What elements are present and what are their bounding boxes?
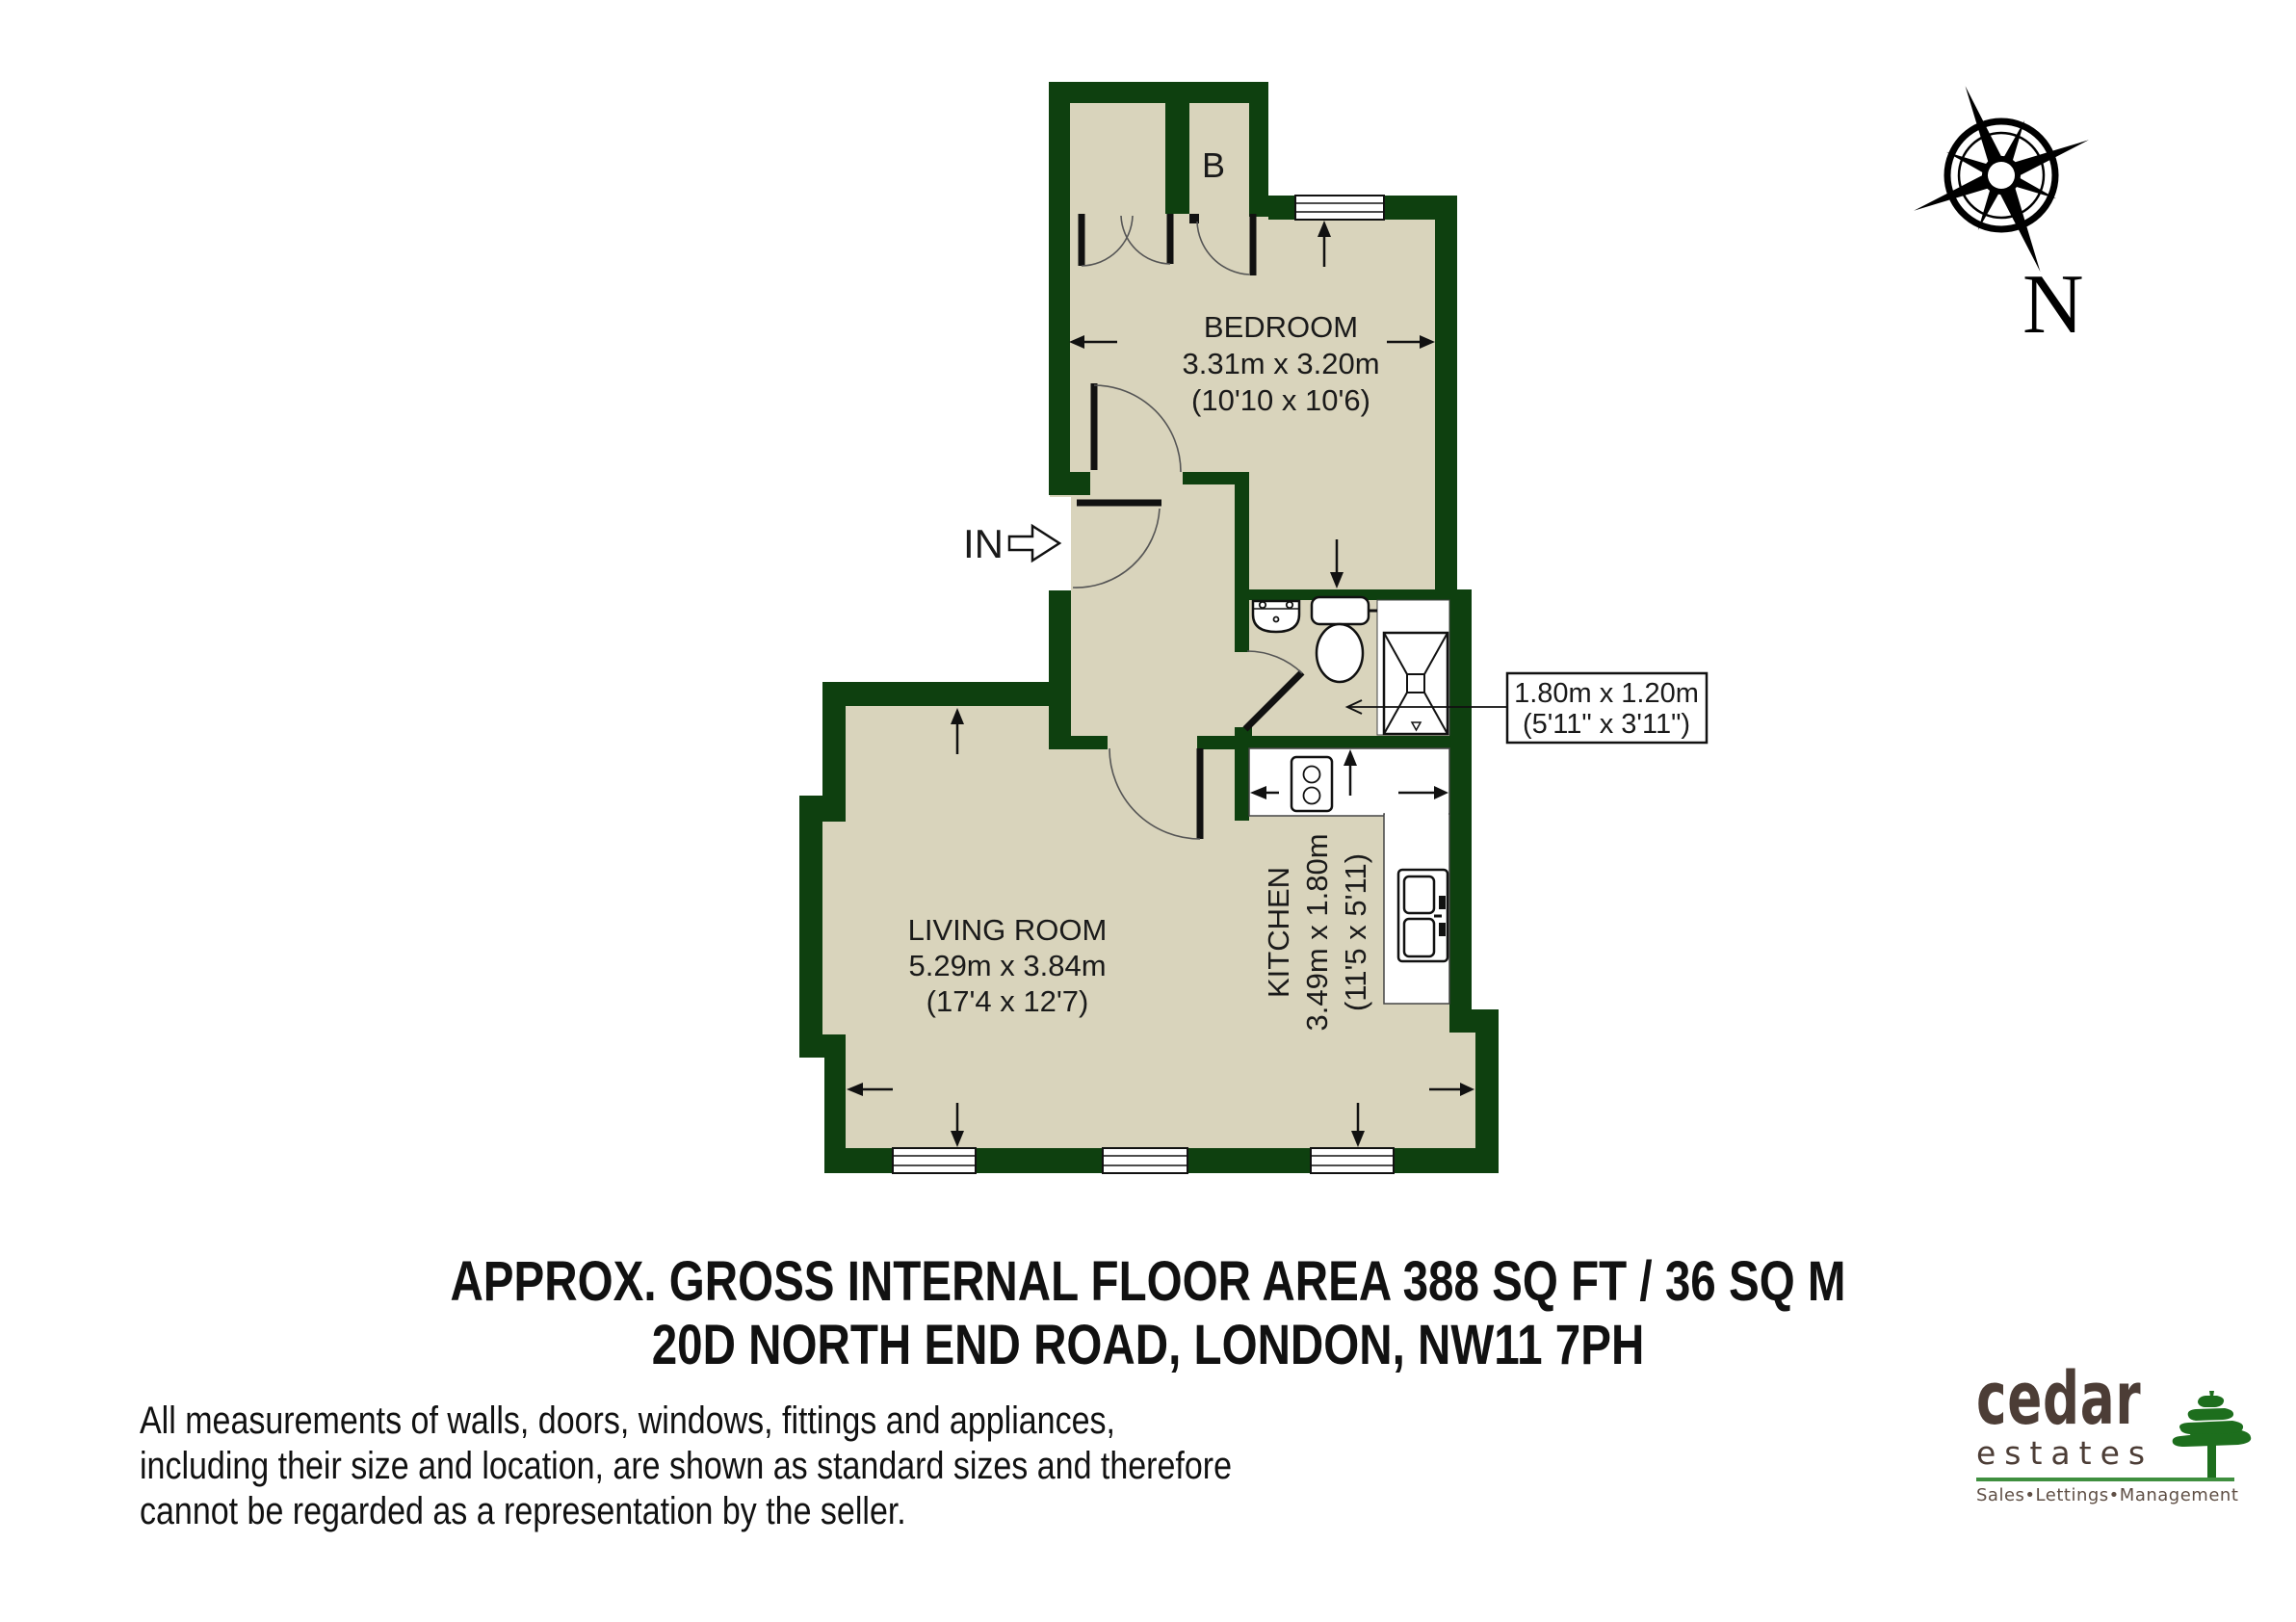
- north-label: N: [2022, 258, 2084, 352]
- bedroom-name-label: BEDROOM: [1204, 310, 1358, 344]
- cedar-tree-icon: [2169, 1389, 2256, 1480]
- living-room-metric-label: 5.29m x 3.84m: [908, 949, 1106, 982]
- compass-rose-icon: N: [1878, 51, 2128, 352]
- disclaimer-line-2: including their size and location, are s…: [140, 1444, 1232, 1489]
- kitchen-sink: [1398, 870, 1448, 961]
- entrance-arrow-icon: [1009, 526, 1059, 561]
- logo-brand-text: cedar: [1976, 1362, 2179, 1435]
- bathroom-metric-label: 1.80m x 1.20m: [1514, 678, 1699, 709]
- shower: [1377, 600, 1449, 735]
- living-room-imperial-label: (17'4 x 12'7): [926, 984, 1089, 1018]
- kitchen-window: [1311, 1148, 1394, 1173]
- boiler-label: B: [1202, 145, 1225, 185]
- logo-tagline-bullet: •: [2109, 1485, 2120, 1505]
- bedroom-metric-label: 3.31m x 3.20m: [1182, 347, 1379, 380]
- bedroom-imperial-label: (10'10 x 10'6): [1191, 383, 1370, 417]
- living-room-window-1: [893, 1148, 976, 1173]
- floor-plan: 1.80m x 1.20m (5'11" x 3'11") BEDROOM 3.…: [0, 0, 2296, 1622]
- logo-tagline-sales: Sales: [1976, 1485, 2024, 1505]
- entrance-label: IN: [963, 521, 1004, 566]
- address-line: 20D NORTH END ROAD, LONDON, NW11 7PH: [207, 1314, 2090, 1377]
- logo-tagline-management: Management: [2120, 1485, 2239, 1505]
- disclaimer-text: All measurements of walls, doors, window…: [140, 1399, 1232, 1534]
- summary-title: APPROX. GROSS INTERNAL FLOOR AREA 388 SQ…: [207, 1250, 2090, 1377]
- kitchen-name-label: KITCHEN: [1262, 867, 1295, 998]
- hob: [1291, 757, 1332, 811]
- agency-logo: cedar estates Sales • Lettings • Managem…: [1976, 1362, 2265, 1505]
- living-room-name-label: LIVING ROOM: [908, 913, 1108, 947]
- area-line: APPROX. GROSS INTERNAL FLOOR AREA 388 SQ…: [207, 1250, 2090, 1314]
- living-room-window-2: [1103, 1148, 1187, 1173]
- kitchen-imperial-label: (11'5 x 5'11): [1339, 853, 1372, 1011]
- bedroom-window: [1295, 196, 1384, 220]
- bathroom-sink: [1253, 601, 1299, 632]
- entrance-marker: IN: [963, 521, 1059, 566]
- logo-tagline: Sales • Lettings • Management: [1976, 1485, 2234, 1505]
- logo-tagline-lettings: Lettings: [2036, 1485, 2109, 1505]
- logo-tagline-bullet: •: [2024, 1485, 2035, 1505]
- disclaimer-line-3: cannot be regarded as a representation b…: [140, 1489, 1232, 1534]
- kitchen-metric-label: 3.49m x 1.80m: [1300, 833, 1334, 1031]
- disclaimer-line-1: All measurements of walls, doors, window…: [140, 1399, 1232, 1444]
- bathroom-imperial-label: (5'11" x 3'11"): [1523, 709, 1690, 740]
